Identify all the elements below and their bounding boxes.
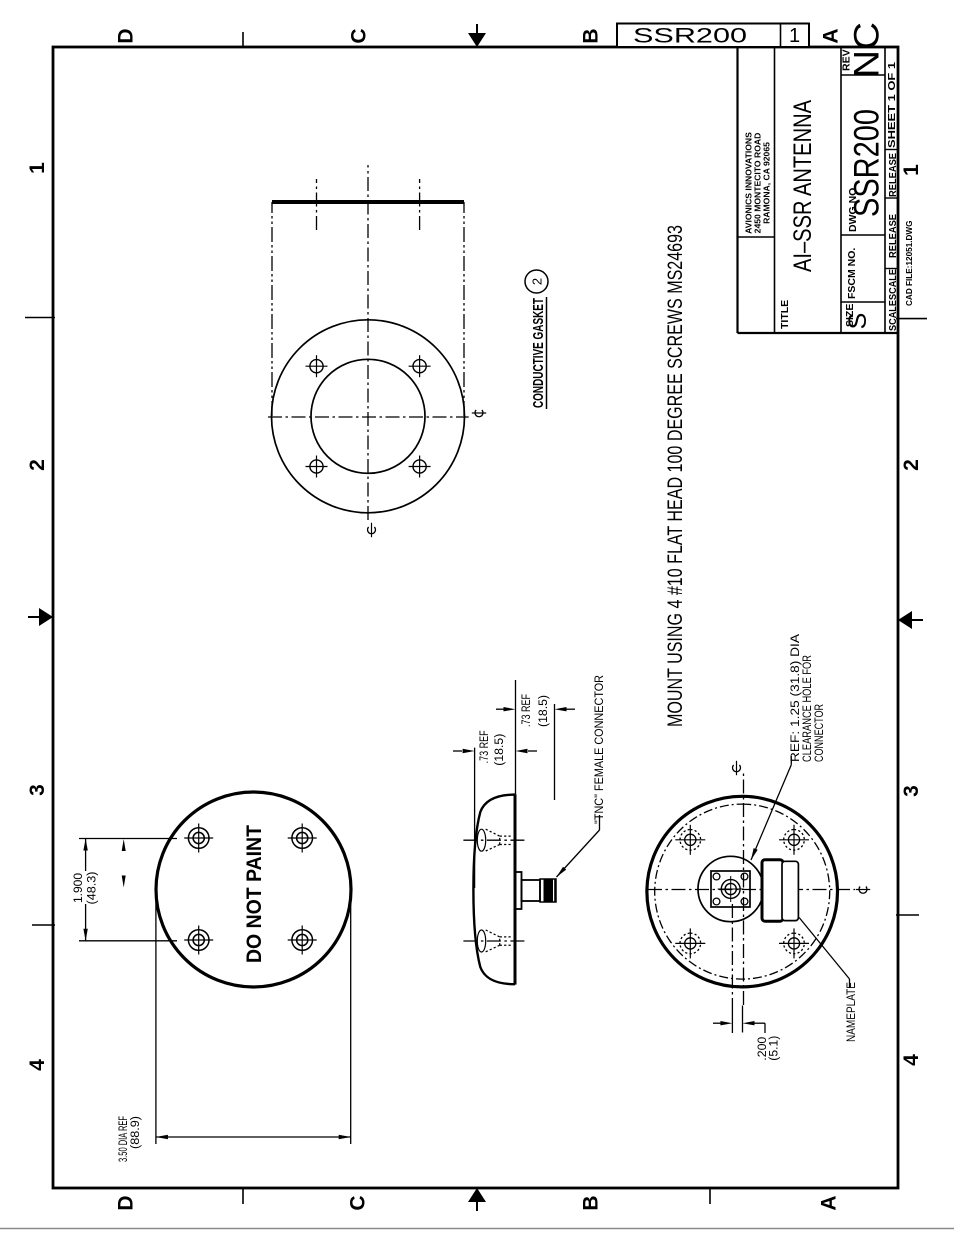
svg-text:(18.5): (18.5) [538,695,550,727]
svg-text:(18.5): (18.5) [494,734,506,766]
svg-text:3.50 DIA REF: 3.50 DIA REF [118,1116,130,1162]
svg-text:.73 REF: .73 REF [479,730,491,763]
svg-text:A: A [820,28,843,43]
svg-text:DO NOT PAINT: DO NOT PAINT [243,825,266,963]
svg-text:B: B [580,1195,603,1210]
svg-text:D: D [115,28,138,43]
svg-text:3: 3 [900,785,923,797]
svg-text:4: 4 [26,1059,49,1071]
svg-text:(88.9): (88.9) [130,1116,142,1149]
svg-text:"TNC" FEMALE CONNECTOR: "TNC" FEMALE CONNECTOR [594,675,606,824]
svg-text:RELEASE: RELEASE [887,214,899,258]
svg-text:AI–SSR ANTENNA: AI–SSR ANTENNA [789,100,817,272]
svg-text:REF: 1.25 (31.8) DIA: REF: 1.25 (31.8) DIA [790,634,802,762]
svg-text:C: C [347,1195,370,1210]
svg-text:NC: NC [848,22,887,78]
svg-text:CLEARANCE HOLE FOR: CLEARANCE HOLE FOR [802,655,814,762]
svg-text:RAMONA, CA 92065: RAMONA, CA 92065 [762,142,772,224]
svg-text:1: 1 [900,164,923,176]
svg-text:S: S [844,313,872,330]
svg-text:C: C [348,28,371,43]
svg-text:TITLE: TITLE [779,300,791,329]
svg-text:1: 1 [789,25,800,47]
svg-text:SCALESCALE: SCALESCALE [887,269,899,331]
svg-text:CONDUCTIVE GASKET: CONDUCTIVE GASKET [530,298,547,408]
svg-text:2: 2 [26,459,49,471]
svg-text:CAD FILE:12051.DWG: CAD FILE:12051.DWG [905,220,914,306]
svg-text:B: B [580,28,603,43]
svg-text:(5.1): (5.1) [769,1036,781,1061]
svg-text:SSR200: SSR200 [633,25,747,48]
svg-text:(48.3): (48.3) [87,871,99,904]
svg-text:FSCM NO.: FSCM NO. [846,248,858,299]
svg-text:NAMEPLATE: NAMEPLATE [846,982,858,1042]
svg-text:2: 2 [530,278,545,285]
svg-text:A: A [818,1195,841,1210]
svg-text:.200: .200 [757,1037,769,1061]
svg-text:2: 2 [900,459,923,471]
svg-text:1.900: 1.900 [73,873,85,903]
svg-text:D: D [115,1195,138,1210]
svg-text:MOUNT USING 4 #10 FLAT HEAD 10: MOUNT USING 4 #10 FLAT HEAD 100 DEGREE S… [664,225,687,727]
svg-text:SHEET 1 OF 1: SHEET 1 OF 1 [886,62,898,148]
svg-text:SSR200: SSR200 [848,109,887,217]
svg-text:CONNECTOR: CONNECTOR [814,704,826,762]
svg-text:3: 3 [26,784,49,796]
svg-text:.73 REF: .73 REF [521,694,533,727]
svg-text:RELEASE: RELEASE [887,153,899,197]
svg-text:4: 4 [900,1054,923,1066]
svg-text:1: 1 [26,162,49,174]
